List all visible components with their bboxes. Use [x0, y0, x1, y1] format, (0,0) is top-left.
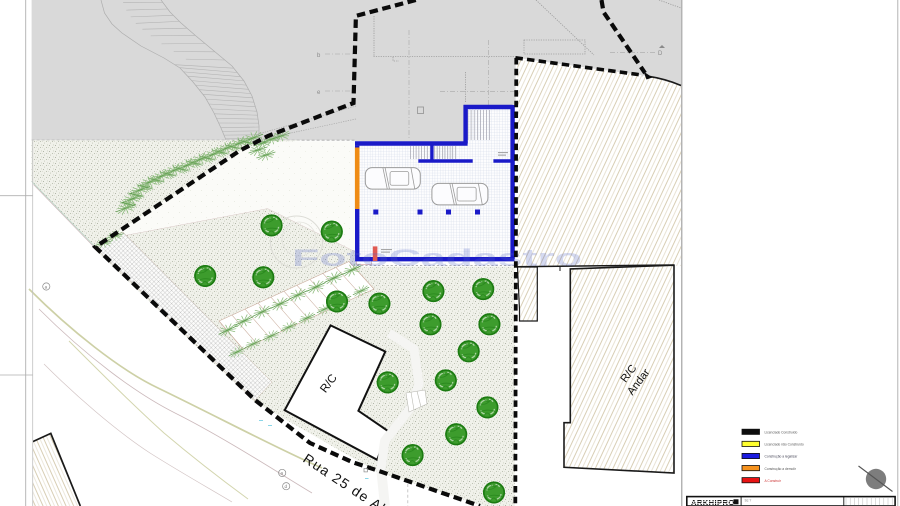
- svg-text:A Construir: A Construir: [765, 479, 782, 483]
- svg-text:D: D: [658, 51, 663, 57]
- svg-text:FotoCadastro: FotoCadastro: [292, 245, 582, 272]
- svg-text:Licenciado não Construído: Licenciado não Construído: [765, 443, 804, 447]
- svg-text:Licenciado Construído: Licenciado Construído: [765, 431, 798, 435]
- svg-text:ARKHIPRO: ARKHIPRO: [691, 498, 735, 506]
- svg-text:Construção a demolir: Construção a demolir: [765, 467, 797, 471]
- svg-text:Sc ?: Sc ?: [745, 499, 752, 503]
- svg-text:Construção a legalizar: Construção a legalizar: [765, 455, 799, 459]
